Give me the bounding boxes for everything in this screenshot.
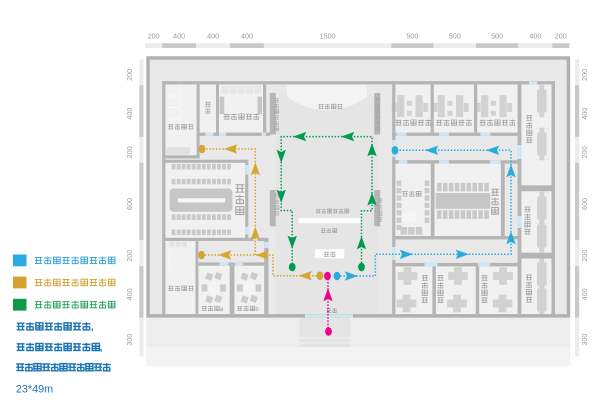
svg-text:200: 200 <box>125 250 134 262</box>
svg-text:200: 200 <box>580 146 589 158</box>
svg-text:,: , <box>91 322 94 333</box>
svg-text:200: 200 <box>125 69 134 81</box>
svg-text:500: 500 <box>406 31 418 40</box>
svg-text:300: 300 <box>580 334 589 346</box>
svg-text:23*49m: 23*49m <box>16 384 53 396</box>
svg-text:400: 400 <box>580 288 589 300</box>
svg-text:400: 400 <box>241 31 253 40</box>
svg-text:500: 500 <box>491 31 503 40</box>
svg-text:200: 200 <box>580 69 589 81</box>
svg-text:200: 200 <box>555 31 567 40</box>
svg-text:300: 300 <box>125 334 134 346</box>
svg-text:500: 500 <box>449 31 461 40</box>
svg-text:600: 600 <box>580 198 589 210</box>
svg-text:400: 400 <box>529 31 541 40</box>
svg-text:200: 200 <box>580 250 589 262</box>
svg-text:400: 400 <box>580 108 589 120</box>
svg-text:400: 400 <box>125 288 134 300</box>
svg-text:400: 400 <box>207 31 219 40</box>
svg-text:400: 400 <box>173 31 185 40</box>
svg-text:200: 200 <box>125 146 134 158</box>
svg-text:200: 200 <box>148 31 160 40</box>
svg-text:600: 600 <box>125 198 134 210</box>
svg-text:400: 400 <box>125 108 134 120</box>
svg-text:1500: 1500 <box>320 31 336 40</box>
svg-text:,: , <box>100 343 103 354</box>
